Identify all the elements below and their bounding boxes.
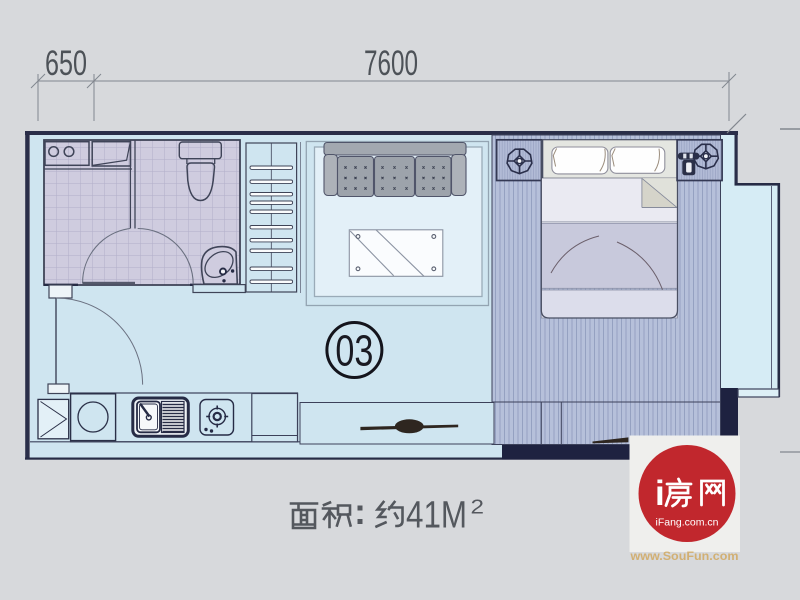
- svg-text:i: i: [655, 474, 665, 513]
- svg-text:www.SouFun.com: www.SouFun.com: [629, 551, 738, 563]
- svg-text:7600: 7600: [364, 44, 418, 83]
- svg-text:03: 03: [335, 327, 373, 376]
- svg-text:41M: 41M: [406, 495, 467, 537]
- svg-text:2: 2: [471, 497, 485, 519]
- svg-text:650: 650: [45, 44, 87, 83]
- svg-text:iFang.com.cn: iFang.com.cn: [655, 517, 718, 529]
